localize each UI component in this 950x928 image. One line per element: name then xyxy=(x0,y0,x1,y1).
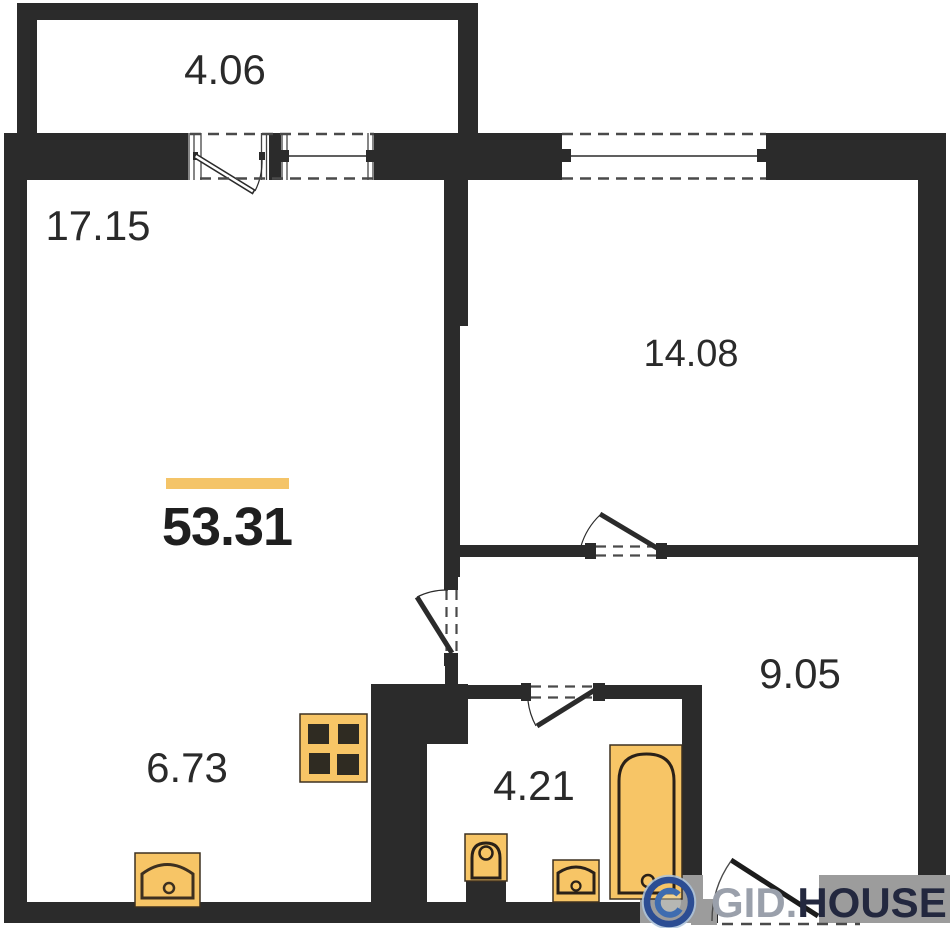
svg-text:14.08: 14.08 xyxy=(643,333,738,375)
svg-text:6.73: 6.73 xyxy=(146,744,228,791)
svg-text:53.31: 53.31 xyxy=(162,497,292,557)
svg-text:17.15: 17.15 xyxy=(45,202,150,249)
svg-text:9.05: 9.05 xyxy=(759,650,841,697)
svg-text:4.06: 4.06 xyxy=(184,46,266,93)
svg-text:GID.HOUSE: GID.HOUSE xyxy=(711,879,947,926)
svg-text:4.21: 4.21 xyxy=(493,762,575,809)
